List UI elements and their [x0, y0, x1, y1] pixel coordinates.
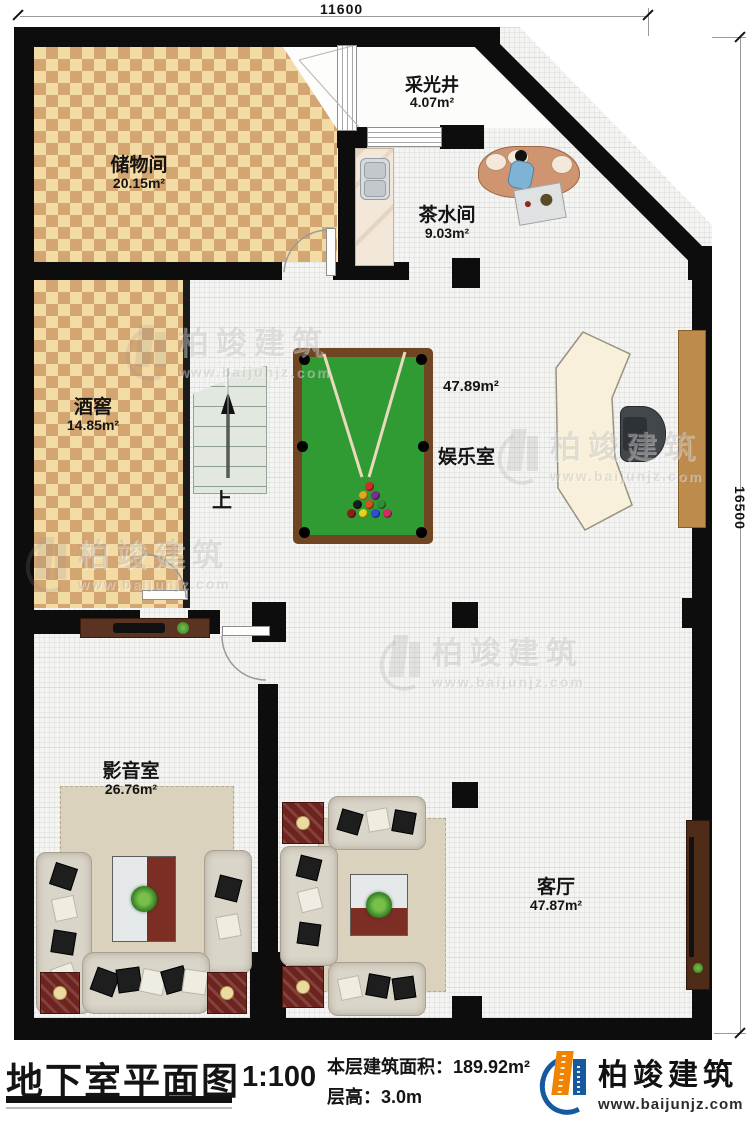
wall — [14, 27, 500, 47]
tv-screen — [113, 623, 165, 633]
wall — [14, 1018, 712, 1040]
column — [440, 125, 484, 149]
plant — [693, 963, 703, 973]
floor-area-row: 本层建筑面积：189.92m² — [327, 1053, 530, 1079]
speaker-mat — [282, 966, 324, 1008]
wall — [14, 27, 34, 1040]
floor-area-value: 189.92m² — [453, 1057, 530, 1077]
sofa — [82, 952, 210, 1014]
plant — [131, 886, 157, 912]
bookshelf-cabinet — [678, 330, 706, 528]
brand-block: 柏竣建筑 www.baijunjz.com — [598, 1050, 743, 1113]
column — [452, 782, 478, 808]
title-underline — [6, 1096, 232, 1103]
window — [337, 45, 357, 131]
floor-area-label: 本层建筑面积： — [327, 1057, 453, 1077]
coffee-table — [112, 856, 176, 942]
floor-height-row: 层高：3.0m — [327, 1083, 422, 1109]
column — [452, 602, 478, 628]
tv-screen — [689, 837, 694, 957]
office-chair — [620, 406, 666, 462]
column — [688, 246, 712, 280]
room-label-lightwell: 采光井 4.07m² — [405, 76, 459, 110]
column — [452, 996, 482, 1018]
brand-logo-icon — [542, 1049, 592, 1107]
room-label-living: 客厅 47.87m² — [530, 878, 582, 913]
speaker-mat — [282, 802, 324, 844]
floor-wine-cellar — [34, 280, 183, 608]
wall — [258, 684, 278, 952]
sink — [360, 158, 390, 200]
door-leaf-wine — [142, 590, 188, 600]
room-area-entertainment: 47.89m² — [443, 378, 499, 395]
sofa — [280, 846, 338, 966]
dimension-line-right — [740, 38, 741, 1034]
title-block: 地下室平面图 1:100 本层建筑面积：189.92m² 层高：3.0m 柏竣建… — [0, 1045, 750, 1115]
column — [682, 598, 712, 628]
speaker-mat — [40, 972, 80, 1014]
sink-basin — [364, 180, 386, 197]
pool-table — [293, 348, 433, 544]
wall — [338, 148, 355, 262]
coffee-table — [350, 874, 408, 936]
dimension-right-label: 16500 — [732, 486, 748, 530]
brand-name: 柏竣建筑 — [598, 1050, 743, 1094]
dimension-top-label: 11600 — [320, 1, 363, 17]
floor-height-label: 层高： — [327, 1087, 381, 1107]
floor-plan-canvas: 上 — [0, 0, 750, 1115]
room-label-storage: 储物间 20.15m² — [110, 156, 167, 191]
floor-storage-room — [34, 47, 337, 262]
room-label-wine: 酒窖 14.85m² — [67, 398, 119, 433]
speaker-mat — [207, 972, 247, 1014]
sofa — [328, 796, 426, 850]
plant — [366, 892, 392, 918]
wall — [34, 262, 282, 280]
brand-url: www.baijunjz.com — [598, 1096, 743, 1113]
column — [452, 258, 480, 288]
room-label-entertainment: 娱乐室 — [438, 442, 495, 469]
door-leaf-media — [222, 626, 270, 636]
sofa-cushion — [485, 153, 507, 171]
stairs-up-label: 上 — [212, 484, 233, 513]
tv-cabinet — [686, 820, 710, 990]
chaise — [204, 850, 252, 974]
scale-text: 1:100 — [242, 1061, 316, 1094]
room-label-tea: 茶水间 9.03m² — [418, 206, 475, 241]
sofa-cushion — [551, 155, 573, 174]
column — [250, 952, 286, 1018]
door-leaf-storage — [326, 228, 336, 276]
floor-height-value: 3.0m — [381, 1087, 422, 1107]
column — [252, 602, 286, 642]
room-label-media: 影音室 26.76m² — [102, 762, 159, 797]
wall — [183, 280, 190, 608]
dimension-tick — [12, 9, 23, 20]
title-underline-thin — [6, 1107, 232, 1109]
tv-console — [80, 618, 210, 638]
window — [367, 127, 442, 147]
sofa — [328, 962, 426, 1016]
plant — [177, 622, 189, 634]
sink-basin — [364, 162, 386, 179]
